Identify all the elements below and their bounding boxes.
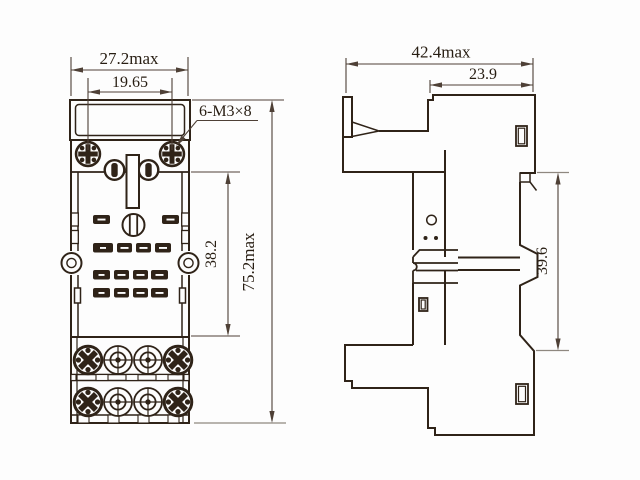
side-slot-top (516, 126, 527, 146)
latch-hole-left (105, 160, 125, 180)
release-lever (413, 250, 520, 283)
dim-upper-depth: 23.9 (430, 66, 533, 93)
dim-rail-height-label: 39.6 (534, 247, 551, 275)
panel-flange (343, 97, 379, 137)
center-fixing-screw (123, 214, 145, 236)
column-marks (424, 215, 439, 240)
screw-callout-label: 6-M3×8 (199, 103, 252, 120)
latch-hole-right (139, 160, 159, 180)
center-tab (127, 155, 140, 208)
dim-mounting-pitch-label: 19.65 (112, 74, 148, 91)
technical-drawing-page: 27.2max 19.65 6-M3×8 38.2 75.2max 42.4ma… (0, 0, 640, 480)
dim-overall-depth-label: 42.4max (411, 43, 471, 62)
din-rail-column (413, 150, 445, 345)
mounting-ear-right (179, 253, 199, 273)
dim-overall-width-label: 27.2max (99, 49, 159, 68)
side-slot-bottom (516, 384, 528, 404)
side-body-outline (343, 95, 538, 435)
dim-rail-height: 39.6 (534, 173, 569, 351)
relay-socket-dimension-drawing: 27.2max 19.65 6-M3×8 38.2 75.2max 42.4ma… (0, 0, 640, 480)
dim-contact-zone-label: 38.2 (203, 240, 220, 268)
terminal-screw (134, 388, 162, 416)
terminal-screw (104, 346, 132, 374)
terminal-screw (134, 346, 162, 374)
dim-upper-depth-label: 23.9 (469, 66, 497, 83)
front-view (62, 100, 199, 423)
dim-contact-zone-height: 38.2 (191, 172, 240, 336)
mounting-ear-left (62, 253, 82, 273)
side-view (343, 95, 538, 435)
dim-overall-height-label: 75.2max (239, 232, 258, 292)
terminal-screw (104, 388, 132, 416)
